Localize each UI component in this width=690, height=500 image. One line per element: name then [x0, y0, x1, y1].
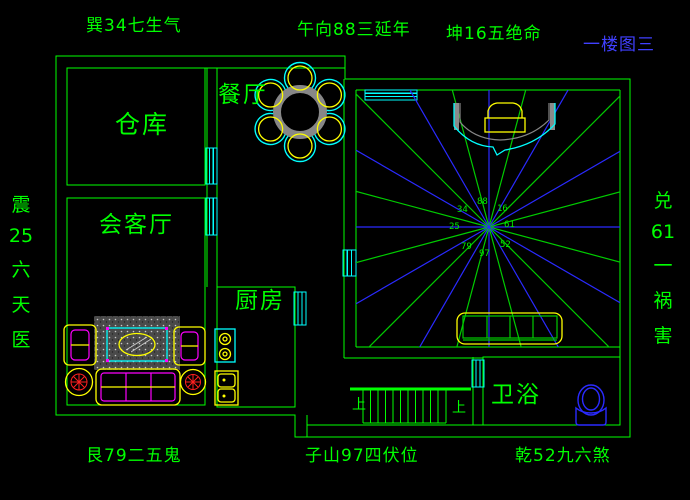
room-label-dining: 餐厅: [218, 84, 268, 107]
compass-num-s: 97: [479, 249, 490, 259]
stairs-up-label-right: 上: [452, 401, 467, 415]
compass-num-se: 52: [500, 240, 511, 250]
dressing-table: [454, 103, 555, 155]
room-label-reception: 会客厅: [99, 214, 174, 237]
compass-num-e: 61: [504, 220, 515, 230]
window-bedroom-west: [343, 250, 356, 276]
sheet-title: 一楼图三: [583, 37, 655, 54]
label-qian-nw: 乾52九六煞: [515, 448, 611, 465]
compass-num-n: 88: [477, 197, 488, 207]
dressing-stool: [485, 103, 525, 132]
label-dui-char-2: 一: [653, 251, 672, 278]
label-zhen-char-0: 震: [11, 190, 30, 217]
label-dui-west: 兑 61 一 祸 害: [648, 186, 678, 348]
dining-table-set: [249, 63, 350, 162]
compass-num-nw: 34: [457, 205, 468, 215]
window-bath-corridor: [472, 360, 484, 387]
side-table-left: [66, 369, 93, 396]
label-kun-sw: 坤16五绝命: [446, 26, 542, 43]
label-dui-char-4: 害: [653, 321, 672, 348]
bedroom-sofa: [457, 313, 562, 344]
label-zhen-char-3: 天: [11, 290, 30, 317]
window-kitchen-east: [294, 292, 306, 325]
toilet: [576, 385, 606, 425]
side-table-right: [181, 370, 206, 395]
compass-ray: [411, 227, 489, 500]
room-label-kitchen: 厨房: [235, 290, 285, 313]
windows: [206, 90, 484, 387]
window-bedroom-north: [365, 90, 417, 100]
compass-ray: [229, 77, 489, 227]
living-room-furniture: [64, 316, 206, 405]
label-dui-char-0: 兑: [653, 186, 672, 213]
compass-num-sw: 79: [461, 242, 472, 252]
compass-center: [487, 225, 490, 228]
kitchen-cabinet: [215, 371, 238, 405]
room-label-bathroom: 卫浴: [491, 384, 541, 407]
stairs-up-label-left: 上: [352, 398, 367, 412]
sofa-three-seat: [96, 369, 180, 405]
room-label-warehouse: 仓库: [115, 112, 169, 137]
stove: [215, 329, 235, 362]
compass-num-ne: 16: [497, 204, 508, 214]
label-xun-se: 巽34七生气: [86, 18, 182, 35]
label-zhen-char-2: 六: [11, 255, 30, 282]
label-gen-ne: 艮79二五鬼: [86, 448, 182, 465]
label-zhen-char-4: 医: [11, 325, 30, 352]
kitchen-fixtures: [215, 329, 238, 405]
label-wu-facing: 午向88三延年: [297, 22, 411, 39]
label-dui-char-1: 61: [651, 221, 675, 243]
label-dui-char-3: 祸: [653, 286, 672, 313]
floorplan-drawing: 34 88 16 25 61 79 97 52: [0, 0, 690, 500]
cad-drawing-canvas[interactable]: 34 88 16 25 61 79 97 52: [0, 0, 690, 500]
label-zi-sitting: 子山97四伏位: [305, 448, 419, 465]
armchair-left: [64, 325, 96, 365]
compass-numbers: 34 88 16 25 61 79 97 52: [449, 197, 515, 259]
label-zhen-east: 震 25 六 天 医: [6, 190, 36, 352]
compass-num-w: 25: [449, 222, 460, 232]
label-zhen-char-1: 25: [9, 225, 33, 247]
